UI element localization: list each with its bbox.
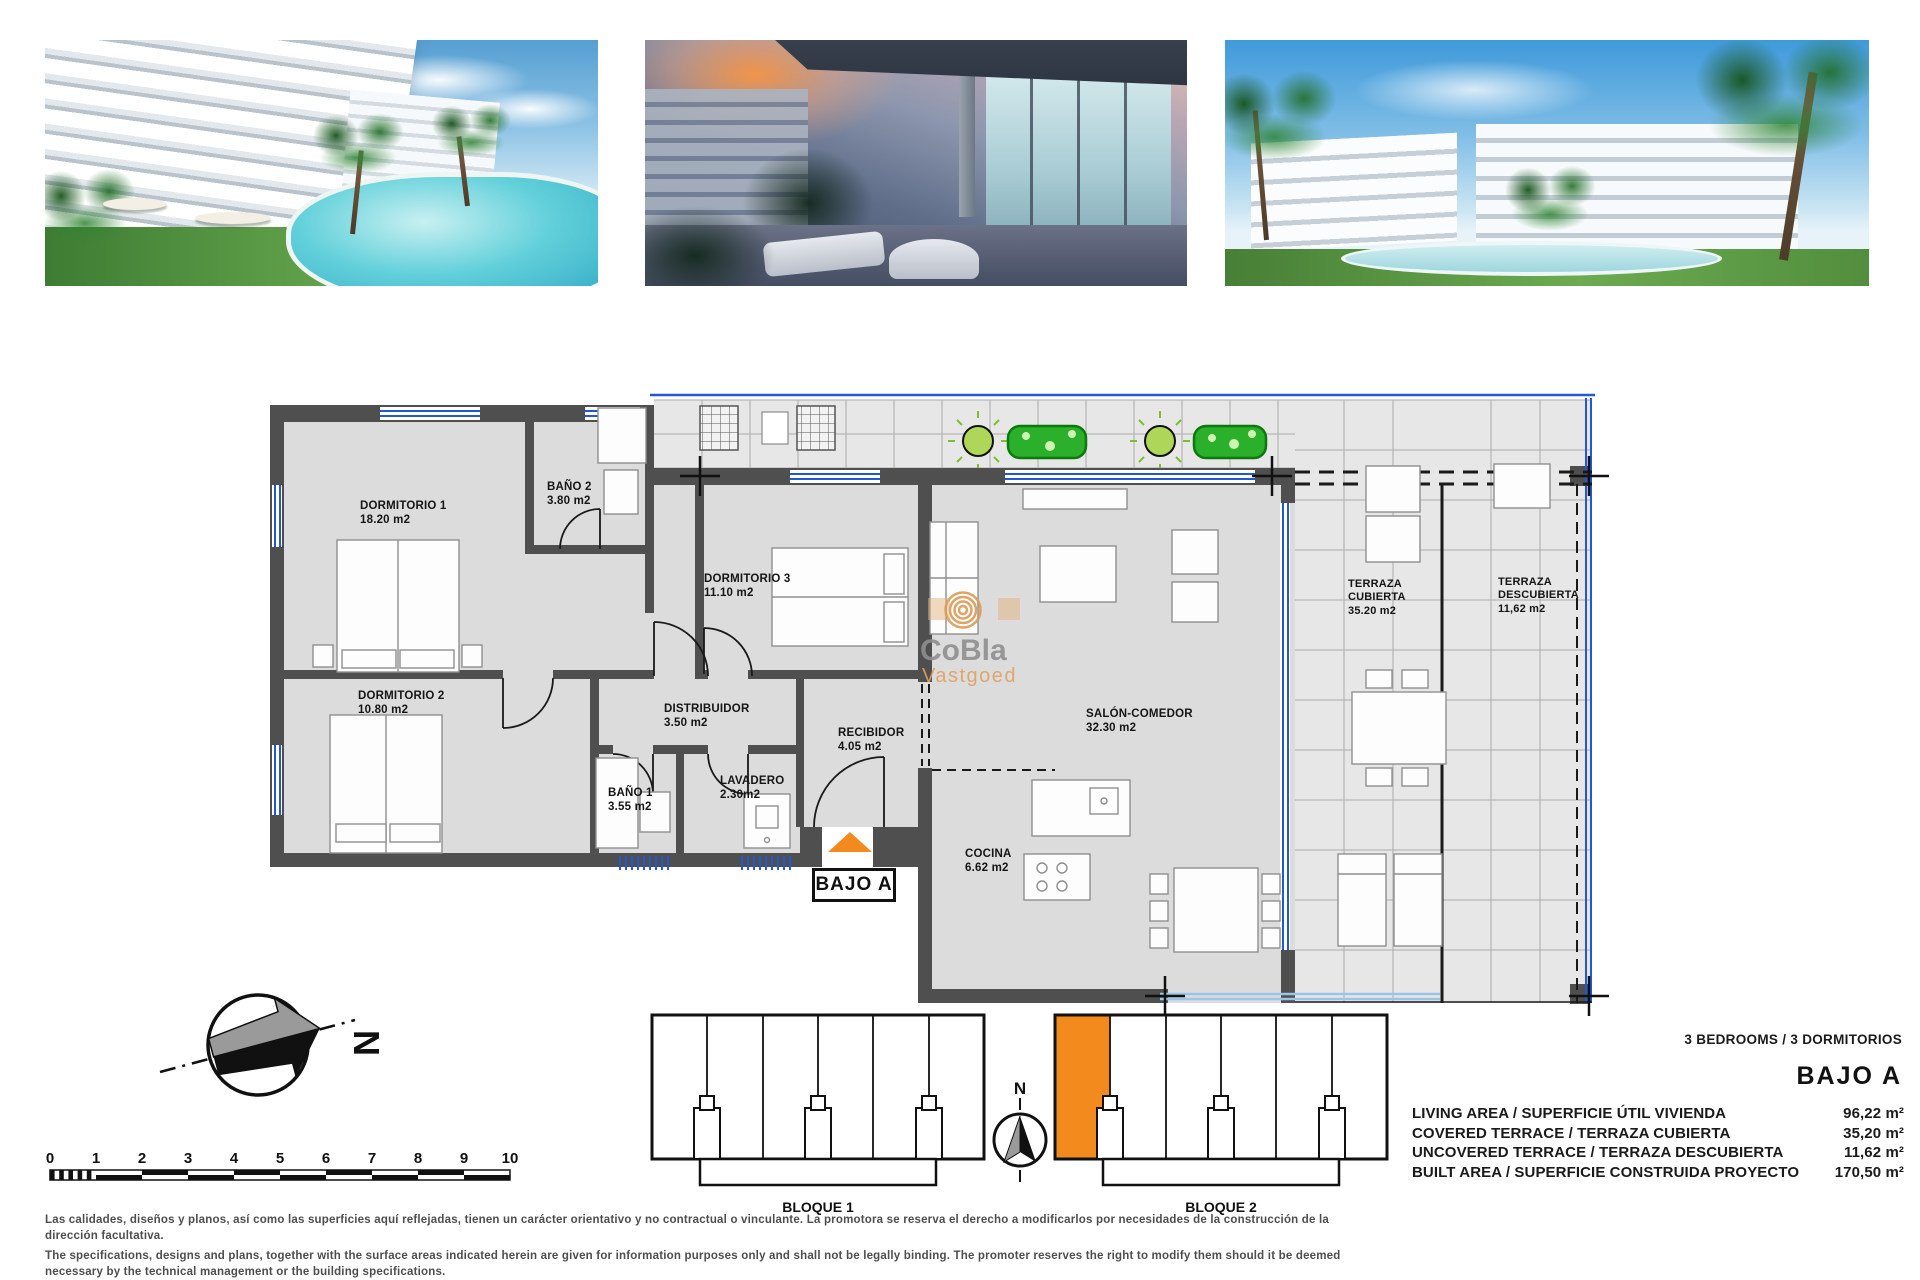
watermark-sub: Vastgoed: [922, 665, 1017, 687]
cloud: [1354, 60, 1594, 120]
svg-text:7: 7: [368, 1150, 376, 1167]
room-label-terraza-descubierta: TERRAZA DESCUBIERTA 11,62 m2: [1498, 576, 1586, 616]
terrace-storage: [1366, 466, 1420, 512]
svg-text:5: 5: [276, 1150, 284, 1167]
bloque2-keyplan: [1055, 1015, 1387, 1185]
terrace-storage: [1494, 464, 1550, 508]
armchair: [1172, 530, 1218, 574]
table-row: UNCOVERED TERRACE / TERRAZA DESCUBIERTA …: [1412, 1143, 1904, 1163]
svg-text:2: 2: [138, 1150, 146, 1167]
north-compass-icon: N: [160, 989, 387, 1097]
table-row: BUILT AREA / SUPERFICIE CONSTRUIDA PROYE…: [1412, 1163, 1904, 1183]
lounge-chair: [889, 239, 979, 279]
watermark-logo: CoBla Vastgoed: [920, 593, 1020, 688]
bed-double: [330, 715, 442, 853]
svg-text:4: 4: [230, 1150, 239, 1167]
swimming-pool: [1341, 241, 1723, 276]
bloque1-keyplan: [652, 1015, 984, 1185]
bed-double: [313, 540, 482, 672]
armchair: [1172, 582, 1218, 622]
bed-double: [772, 548, 908, 646]
svg-text:8: 8: [414, 1150, 422, 1167]
pillar: [959, 55, 975, 217]
unit-title: BAJO A: [1410, 1062, 1902, 1091]
room-label-lavadero: LAVADERO 2.30m2: [720, 774, 784, 802]
unit-label-box: BAJO A: [812, 868, 896, 902]
keyplan-north-label: N: [1014, 1079, 1026, 1098]
svg-text:6: 6: [322, 1150, 330, 1167]
parasol: [195, 212, 271, 224]
terrace-storage: [1366, 516, 1420, 562]
hedge-icon: [1194, 426, 1266, 458]
room-label-bano-1: BAÑO 1 3.55 m2: [608, 786, 653, 814]
table-row: LIVING AREA / SUPERFICIE ÚTIL VIVIENDA 9…: [1412, 1104, 1904, 1124]
keyplan-north-icon: N: [994, 1079, 1046, 1186]
legal-disclaimer: Las calidades, diseños y planos, así com…: [45, 1212, 1345, 1280]
disclaimer-es: Las calidades, diseños y planos, así com…: [45, 1212, 1345, 1245]
room-label-dormitorio-1: DORMITORIO 1 18.20 m2: [360, 499, 447, 527]
watermark-brand: CoBla: [920, 634, 1007, 667]
svg-text:0: 0: [46, 1150, 54, 1167]
room-label-bano-2: BAÑO 2 3.80 m2: [547, 480, 592, 508]
hedge-icon: [1008, 426, 1086, 458]
svg-text:1: 1: [92, 1150, 100, 1167]
walkway-grates: [700, 406, 835, 450]
coffee-table: [1040, 546, 1116, 602]
room-label-salon-comedor: SALÓN-COMEDOR 32.30 m2: [1086, 707, 1193, 735]
room-label-terraza-cubierta: TERRAZA CUBIERTA 35.20 m2: [1348, 578, 1414, 618]
toilet: [604, 470, 638, 514]
floorplan-drawing: CoBla Vastgoed: [0, 320, 1920, 1020]
north-label: N: [346, 1030, 387, 1056]
svg-text:3: 3: [184, 1150, 192, 1167]
shower-tray: [598, 408, 646, 463]
washing-machine: [744, 794, 790, 848]
room-label-cocina: COCINA 6.62 m2: [965, 847, 1012, 875]
room-label-dormitorio-2: DORMITORIO 2 10.80 m2: [358, 689, 445, 717]
kitchen-island: [1032, 780, 1130, 836]
tv-bench: [1023, 489, 1127, 509]
area-summary-table: LIVING AREA / SUPERFICIE ÚTIL VIVIENDA 9…: [1412, 1104, 1904, 1182]
parasol: [103, 198, 167, 210]
svg-text:9: 9: [460, 1150, 468, 1167]
palm-tree: [423, 98, 519, 162]
palm-tree: [303, 106, 413, 180]
bedrooms-header: 3 BEDROOMS / 3 DORMITORIOS: [1410, 1032, 1902, 1047]
photo-pool-garden-view: [45, 40, 598, 286]
palm-tree: [1495, 158, 1605, 238]
photo-terrace-dusk-view: [645, 40, 1187, 286]
disclaimer-en: The specifications, designs and plans, t…: [45, 1248, 1345, 1280]
room-label-distribuidor: DISTRIBUIDOR 3.50 m2: [664, 702, 749, 730]
svg-text:10: 10: [502, 1150, 519, 1167]
room-label-recibidor: RECIBIDOR 4.05 m2: [838, 726, 904, 754]
scale-bar: 0 1 2 3 4 5 6 7 8 9 10: [46, 1150, 519, 1180]
room-label-dormitorio-3: DORMITORIO 3 11.10 m2: [704, 572, 791, 600]
plan-sheet: CoBla Vastgoed DORMITORIO 1 18.20 m2 BAÑ…: [0, 0, 1920, 1280]
stove: [1024, 854, 1090, 900]
table-row: COVERED TERRACE / TERRAZA CUBIERTA 35,20…: [1412, 1124, 1904, 1144]
photo-building-facade-view: [1225, 40, 1869, 286]
swimming-pool: [286, 172, 598, 286]
